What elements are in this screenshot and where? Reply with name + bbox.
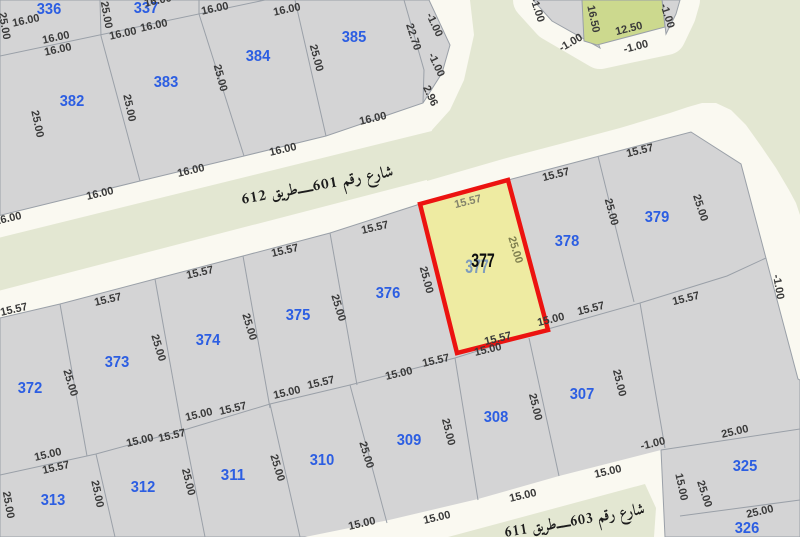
svg-text:375: 375: [286, 307, 311, 324]
svg-text:312: 312: [131, 479, 156, 496]
svg-text:308: 308: [484, 409, 509, 426]
svg-text:385: 385: [342, 29, 367, 46]
svg-text:383: 383: [154, 74, 179, 91]
svg-text:307: 307: [570, 386, 595, 403]
svg-text:309: 309: [397, 432, 422, 449]
svg-text:311: 311: [221, 467, 246, 484]
svg-text:336: 336: [37, 1, 62, 18]
svg-text:313: 313: [41, 492, 66, 509]
svg-text:374: 374: [196, 332, 221, 349]
svg-text:325: 325: [733, 458, 758, 475]
svg-text:384: 384: [246, 48, 271, 65]
svg-text:377: 377: [471, 250, 495, 272]
svg-text:378: 378: [555, 233, 580, 250]
svg-text:373: 373: [105, 354, 130, 371]
svg-text:382: 382: [60, 93, 85, 110]
svg-text:376: 376: [376, 285, 401, 302]
svg-text:326: 326: [735, 520, 760, 537]
svg-text:310: 310: [310, 452, 335, 469]
svg-text:372: 372: [18, 380, 43, 397]
svg-text:379: 379: [645, 209, 670, 226]
